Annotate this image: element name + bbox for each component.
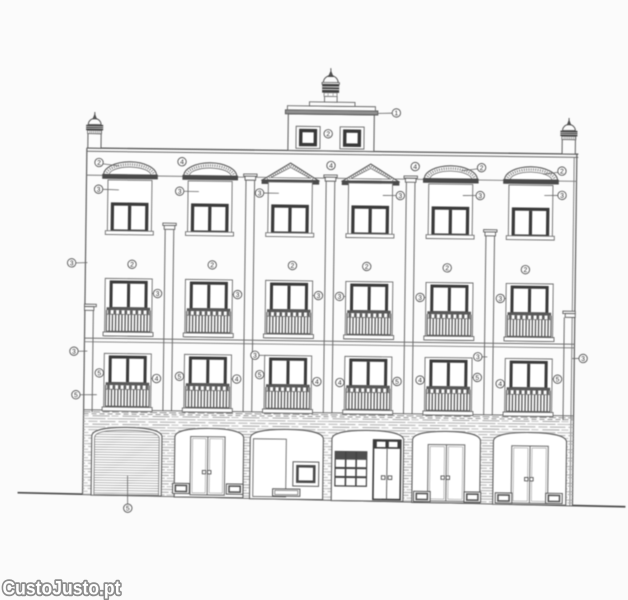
svg-text:CustoJusto.pt: CustoJusto.pt [3, 578, 121, 600]
